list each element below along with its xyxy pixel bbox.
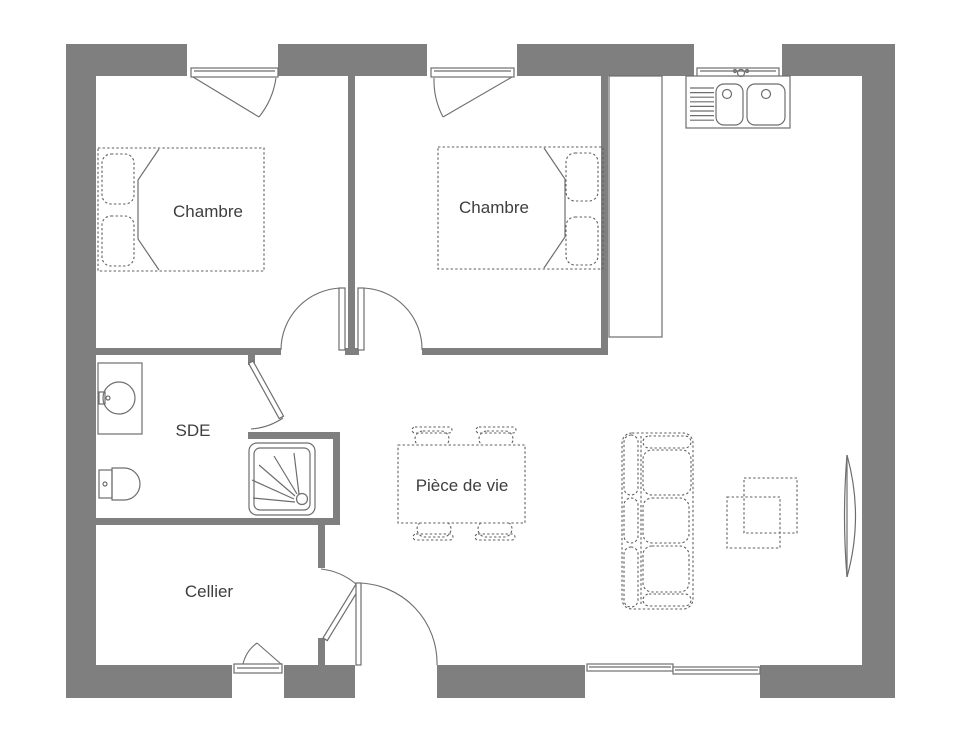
chair	[475, 521, 515, 540]
shower-drain	[297, 494, 308, 505]
sofa-cushion	[643, 546, 689, 592]
window-swing-arc	[259, 78, 276, 117]
sofa-armrest	[643, 594, 691, 606]
floor-plan: Chambre Chambre SDE Cellier Pièce de vie	[0, 0, 960, 742]
window-bedroom-1	[191, 68, 278, 117]
door-swing-arc	[251, 418, 283, 429]
radiator-curve-right	[847, 455, 856, 577]
wall-cellier-east-lower	[318, 638, 325, 665]
wall-kitchen-divider	[601, 76, 608, 352]
sofa-back-segment	[624, 498, 638, 543]
nesting-tables	[727, 478, 797, 548]
toilet-button	[103, 482, 107, 486]
door-leaf	[358, 288, 364, 350]
wall-bedroom-divider	[348, 76, 355, 355]
wall-bottom-segment	[66, 665, 232, 698]
door-leaf	[249, 361, 284, 419]
wall-bedrooms-south-right	[422, 348, 608, 355]
washbasin-tap-dot	[106, 396, 110, 400]
window-cellier	[234, 643, 282, 673]
door-sde	[249, 361, 284, 429]
door-cellier	[321, 569, 361, 641]
window-swing-arc	[243, 643, 257, 664]
room-label-chambre-1: Chambre	[173, 202, 243, 221]
room-label-cellier: Cellier	[185, 582, 234, 601]
nesting-table	[744, 478, 797, 533]
door-swing-arc	[358, 583, 437, 665]
wall-sde-south	[96, 518, 340, 525]
door-leaf	[356, 583, 361, 665]
wall-shower-north	[248, 432, 340, 439]
door-leaf	[339, 288, 345, 350]
door-bedroom-2	[358, 288, 422, 350]
toilet-tank	[99, 470, 112, 498]
toilet-bowl	[112, 468, 140, 500]
kitchen-counter-tall	[609, 76, 662, 337]
sofa-cushion	[643, 498, 689, 543]
washbasin	[98, 363, 142, 434]
sofa-back-segment	[624, 435, 638, 495]
shower-spray-lines	[252, 453, 299, 502]
window-sash	[193, 77, 259, 117]
window-sash	[257, 643, 281, 664]
shower	[249, 443, 315, 515]
wall-top-segment	[517, 44, 694, 76]
chair-backrest	[476, 427, 516, 433]
sofa-back-segment	[624, 547, 638, 607]
sofa-armrest	[643, 436, 691, 448]
pillow	[102, 216, 134, 266]
duvet-fold-line	[544, 148, 565, 268]
window-frame	[431, 68, 514, 77]
window-sash	[443, 77, 512, 117]
chair	[413, 521, 453, 540]
wall-bottom-segment	[284, 665, 355, 698]
window-swing-arc	[434, 78, 443, 117]
wall-bedrooms-south-stub	[345, 348, 359, 355]
door-swing-arc	[361, 288, 422, 350]
door-leaf	[323, 583, 361, 640]
chair-backrest	[412, 427, 452, 433]
chair	[412, 427, 452, 447]
wall-bottom-segment	[760, 665, 895, 698]
door-swing-arc	[321, 569, 356, 584]
pillow	[566, 217, 598, 265]
pillow	[566, 153, 598, 201]
sofa	[622, 433, 693, 609]
window-bedroom-2	[431, 68, 514, 117]
sofa-outline	[622, 433, 693, 609]
door-swing-arc	[281, 288, 342, 350]
wall-bedrooms-south-left	[96, 348, 281, 355]
interior-walls	[96, 76, 608, 665]
room-label-piece-de-vie: Pièce de vie	[416, 476, 509, 495]
toilet	[99, 468, 140, 500]
sofa-cushion	[643, 450, 691, 495]
sliding-bay-window	[587, 664, 760, 674]
chair	[476, 427, 516, 447]
wall-shower-east	[333, 432, 340, 525]
door-entrance	[356, 583, 437, 665]
door-bedroom-1	[281, 288, 345, 350]
window-frame	[191, 68, 278, 77]
radiator	[845, 455, 856, 577]
wall-bottom-segment	[437, 665, 585, 698]
wall-cellier-east-upper	[318, 525, 325, 568]
wall-left	[66, 44, 96, 698]
duvet-fold-line	[138, 149, 159, 270]
washbasin-bowl	[103, 382, 135, 414]
wall-right	[862, 44, 895, 698]
room-label-chambre-2: Chambre	[459, 198, 529, 217]
wall-top-segment	[278, 44, 427, 76]
nesting-table	[727, 497, 780, 548]
room-label-sde: SDE	[176, 421, 211, 440]
pillow	[102, 154, 134, 204]
